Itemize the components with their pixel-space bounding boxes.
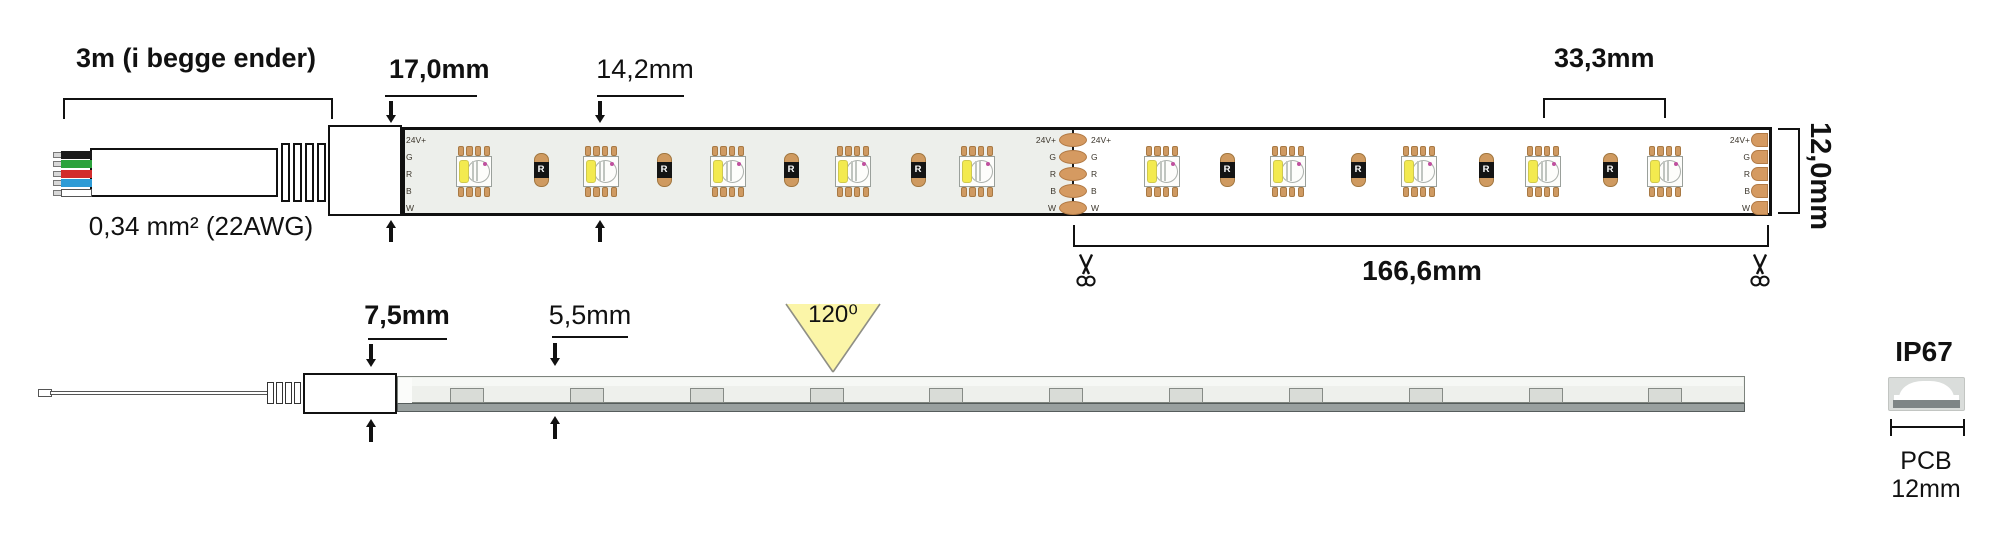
arrow-head	[550, 358, 560, 366]
dimension-arrow-down	[549, 343, 561, 366]
arrow-shaft	[553, 343, 556, 358]
dimension-arrow-up	[365, 419, 377, 442]
profile-led-chip	[1169, 388, 1203, 403]
profile-led-chips	[0, 0, 2000, 553]
ip-icon-pcb	[1893, 400, 1960, 408]
connector-box	[328, 125, 402, 216]
profile-led-chip	[1648, 388, 1682, 403]
profile-led-chip	[1529, 388, 1563, 403]
profile-led-chip	[570, 388, 604, 403]
arrow-head	[386, 115, 396, 123]
arrow-shaft	[369, 427, 372, 442]
profile-led-chip	[929, 388, 963, 403]
profile-led-chip	[1409, 388, 1443, 403]
profile-led-chip	[1289, 388, 1323, 403]
profile-led-chip	[1049, 388, 1083, 403]
arrow-shaft	[553, 424, 556, 439]
arrow-shaft	[598, 101, 601, 115]
arrow-head	[386, 220, 396, 228]
dimension-arrow-down	[385, 101, 397, 123]
arrow-head	[366, 419, 376, 427]
arrow-head	[595, 115, 605, 123]
profile-led-chip	[810, 388, 844, 403]
dimension-arrow-up	[594, 220, 606, 242]
arrow-shaft	[369, 344, 372, 359]
dimension-arrow-down	[365, 344, 377, 367]
dimension-arrow-up	[549, 416, 561, 439]
led-strip-datasheet-diagram: 3m (i begge ender) 0,34 mm² (22AWG) RRRR…	[0, 0, 2000, 553]
arrow-shaft	[389, 228, 392, 242]
profile-led-chip	[690, 388, 724, 403]
arrow-shaft	[389, 101, 392, 115]
side-view: 7,5mm 5,5mm 120⁰	[0, 0, 2000, 553]
arrow-shaft	[598, 228, 601, 242]
side-connector-box	[303, 373, 397, 414]
arrow-head	[595, 220, 605, 228]
dimension-arrow-down	[594, 101, 606, 123]
arrow-head	[550, 416, 560, 424]
arrow-head	[366, 359, 376, 367]
profile-led-chip	[450, 388, 484, 403]
dimension-arrow-up	[385, 220, 397, 242]
